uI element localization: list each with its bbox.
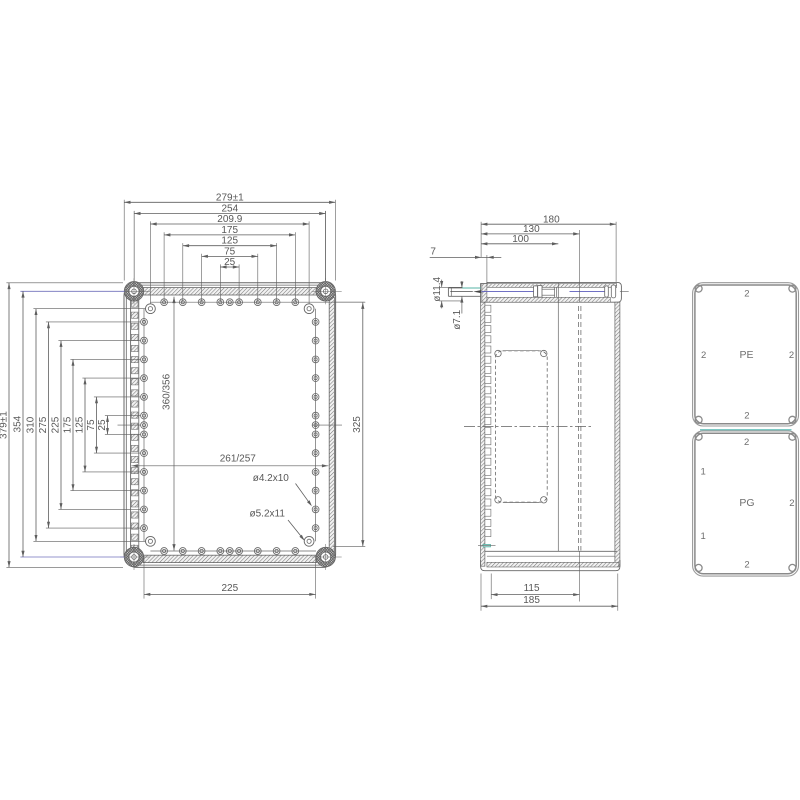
- svg-text:75: 75: [86, 419, 97, 431]
- svg-text:ø11.4: ø11.4: [432, 276, 443, 301]
- svg-text:175: 175: [62, 416, 73, 433]
- svg-text:175: 175: [221, 225, 238, 236]
- svg-text:100: 100: [512, 234, 529, 245]
- svg-text:360/356: 360/356: [161, 373, 172, 410]
- svg-text:310: 310: [25, 416, 36, 433]
- svg-text:115: 115: [524, 583, 540, 594]
- svg-text:325: 325: [352, 416, 363, 433]
- svg-text:ø7.1: ø7.1: [452, 309, 463, 329]
- svg-text:125: 125: [74, 416, 85, 433]
- svg-text:261/257: 261/257: [220, 454, 257, 465]
- svg-text:254: 254: [221, 204, 238, 215]
- svg-text:2: 2: [744, 411, 749, 422]
- svg-text:PE: PE: [739, 349, 753, 361]
- svg-text:275: 275: [38, 416, 49, 433]
- svg-text:225: 225: [221, 583, 238, 594]
- svg-text:2: 2: [744, 437, 749, 448]
- svg-text:180: 180: [543, 214, 560, 225]
- svg-text:379±1: 379±1: [0, 411, 9, 439]
- svg-text:185: 185: [523, 595, 540, 606]
- svg-text:2: 2: [789, 350, 794, 361]
- svg-text:25: 25: [224, 257, 236, 268]
- svg-text:2: 2: [744, 288, 749, 299]
- svg-text:225: 225: [50, 416, 61, 433]
- svg-text:PG: PG: [739, 497, 754, 509]
- svg-text:209.9: 209.9: [217, 214, 242, 225]
- svg-text:2: 2: [789, 498, 794, 509]
- svg-text:2: 2: [744, 560, 749, 571]
- svg-text:ø4.2x10: ø4.2x10: [253, 473, 290, 484]
- svg-text:1: 1: [701, 531, 706, 542]
- svg-text:279±1: 279±1: [216, 192, 244, 203]
- svg-text:125: 125: [221, 236, 238, 247]
- svg-text:75: 75: [224, 246, 236, 257]
- svg-text:354: 354: [12, 415, 23, 432]
- svg-text:25: 25: [97, 419, 108, 431]
- svg-text:2: 2: [701, 350, 706, 361]
- svg-text:ø5.2x11: ø5.2x11: [250, 509, 286, 520]
- svg-text:1: 1: [701, 466, 706, 477]
- svg-text:7: 7: [430, 247, 436, 258]
